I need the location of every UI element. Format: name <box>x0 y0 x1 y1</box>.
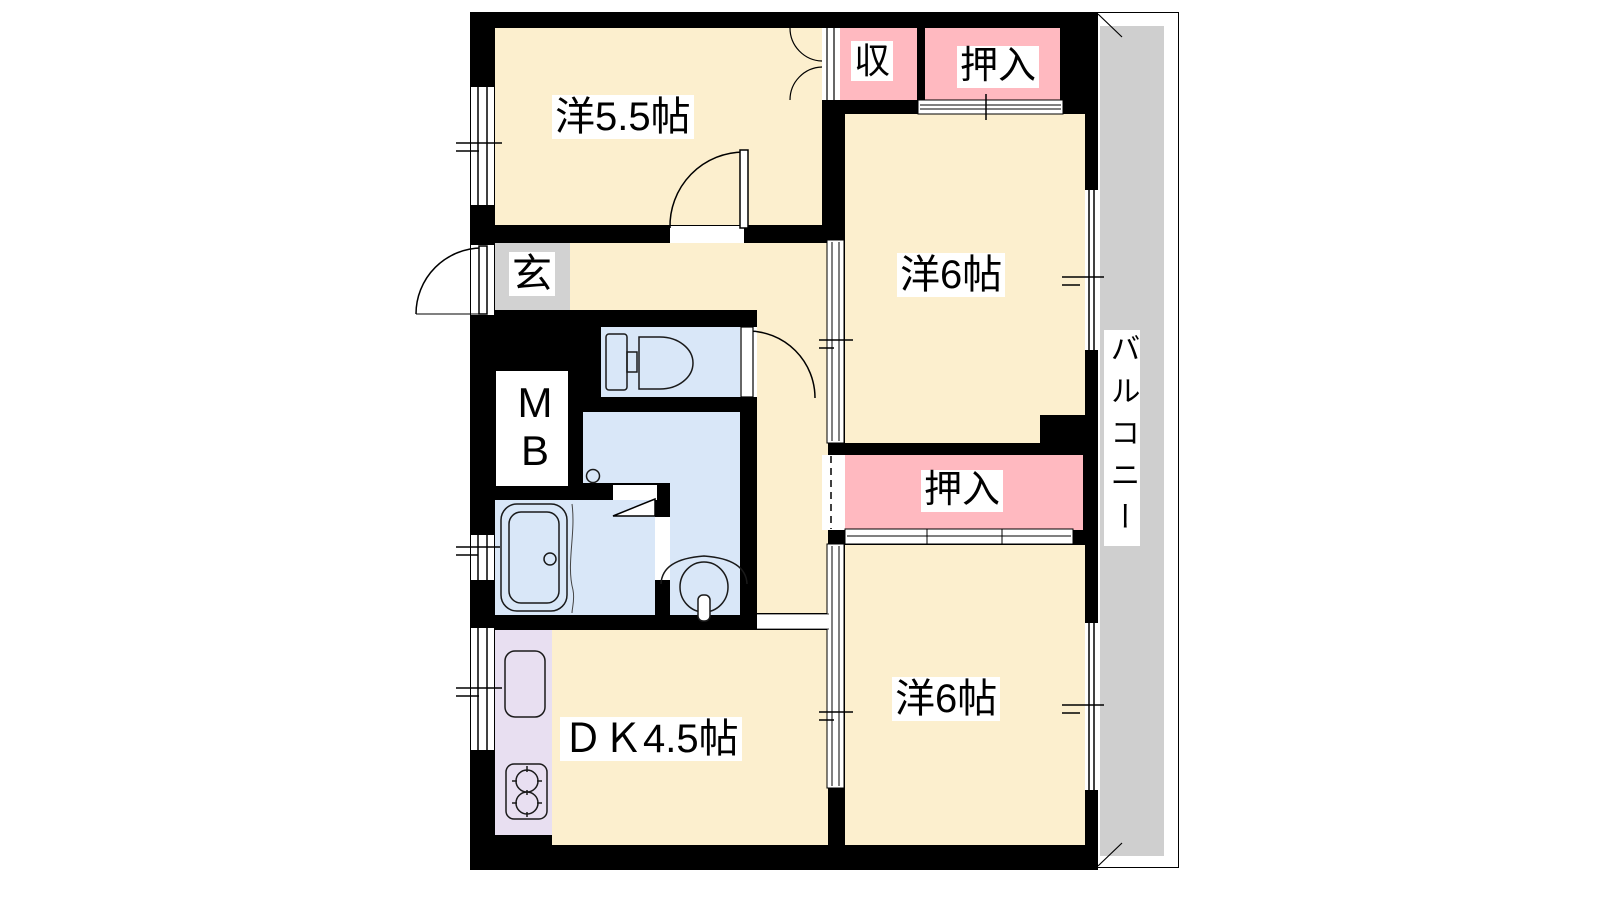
wall-notch <box>1040 415 1098 443</box>
wall-under-kitchen <box>495 835 552 845</box>
room-label-western-6-lower: 洋6帖 <box>892 677 1000 721</box>
hallway-corridor <box>757 310 828 613</box>
room-toilet <box>601 327 740 397</box>
kitchen-counter-strip <box>495 630 552 835</box>
room-label-closet-upper: 押入 <box>957 46 1039 88</box>
room-label-storage: 収 <box>851 41 893 81</box>
room-washroom-column <box>670 412 740 615</box>
room-label-dining-kitchen: ＤＫ4.5帖 <box>560 717 742 761</box>
floor-plan: 洋5.5帖 収 押入 洋6帖 玄 MB 押入 洋6帖 ＤＫ4.5帖 バルコニー <box>0 0 1600 900</box>
room-label-western-5-5: 洋5.5帖 <box>552 95 694 139</box>
room-label-closet-middle: 押入 <box>921 470 1003 512</box>
room-bathroom <box>495 500 655 615</box>
room-label-meter-box: MB <box>505 378 565 477</box>
room-label-entrance: 玄 <box>509 252 555 296</box>
room-label-balcony: バルコニー <box>1104 330 1140 546</box>
room-label-western-6-upper: 洋6帖 <box>897 253 1005 297</box>
hallway-upper <box>570 243 828 310</box>
